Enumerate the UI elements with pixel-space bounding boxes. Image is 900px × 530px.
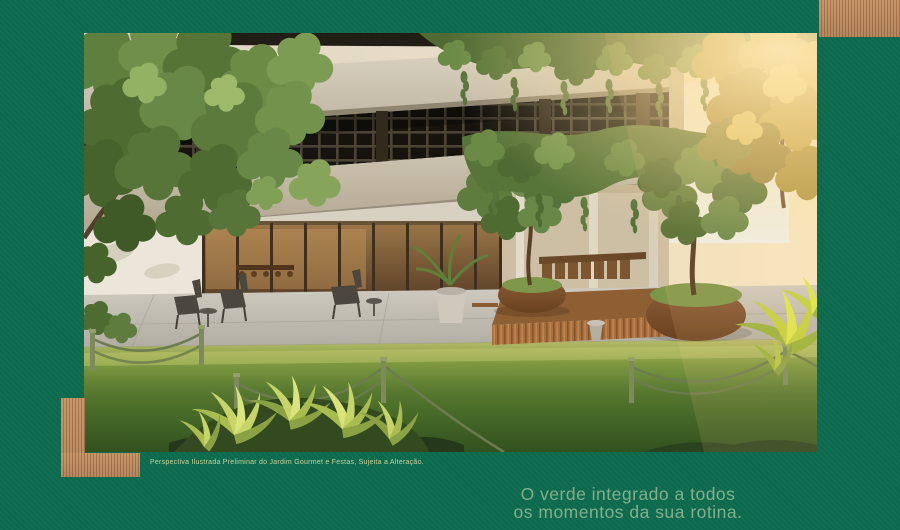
image-caption: Perspectiva Ilustrada Preliminar do Jard… (150, 459, 424, 466)
tagline: O verde integrado a todos os momentos da… (508, 485, 748, 522)
slide-canvas: Perspectiva Ilustrada Preliminar do Jard… (0, 0, 900, 530)
garden-rendering-image (84, 33, 817, 452)
tagline-line-1: O verde integrado a todos (508, 485, 748, 503)
wood-slat-panel-top-right (819, 0, 900, 37)
garden-rendering-illustration (84, 33, 817, 452)
tagline-line-2: os momentos da sua rotina. (508, 503, 748, 521)
wood-slat-panel-bottom-left-horizontal (61, 453, 140, 477)
